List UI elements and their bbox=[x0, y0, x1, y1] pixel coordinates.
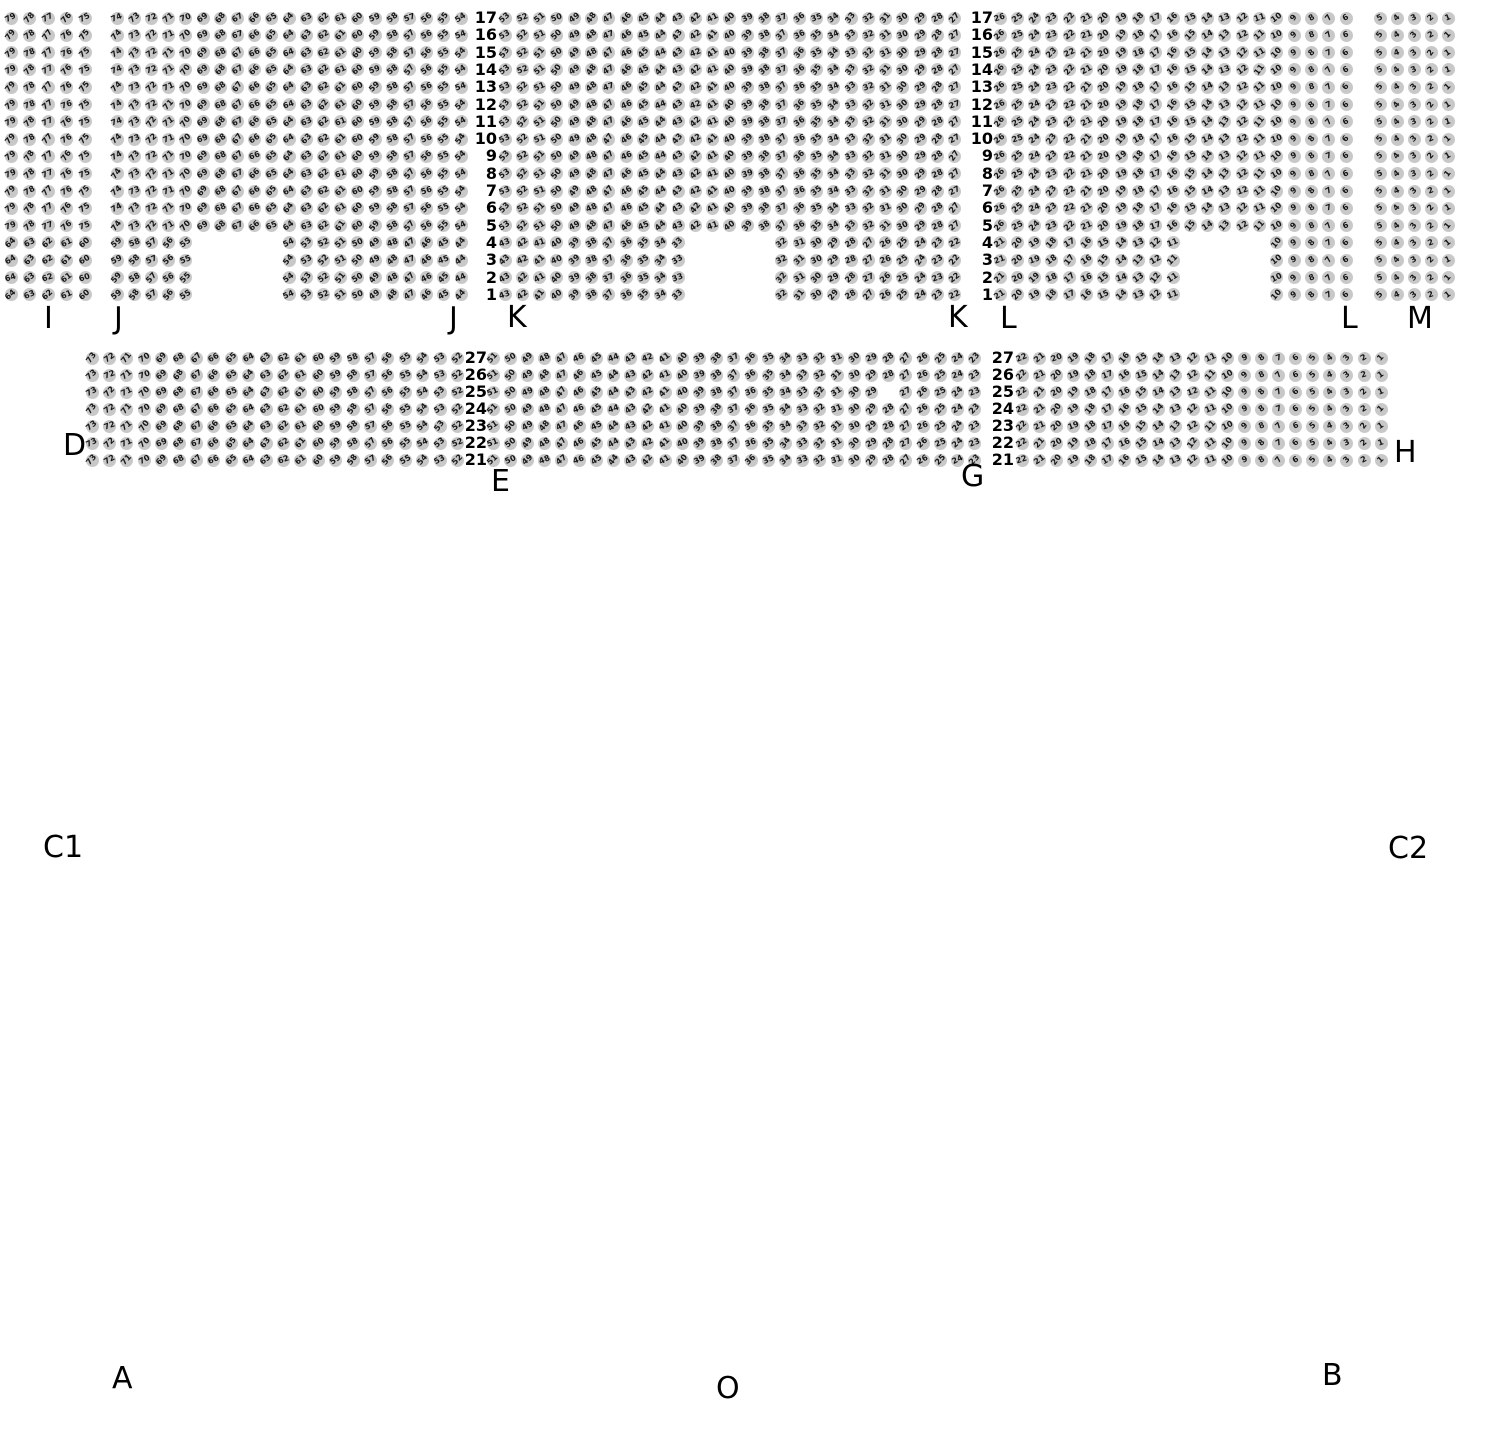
seat[interactable]: 23 bbox=[968, 403, 981, 416]
seat[interactable]: 34 bbox=[827, 63, 840, 76]
seat[interactable]: 9 bbox=[1288, 115, 1301, 128]
seat[interactable]: 52 bbox=[516, 167, 529, 180]
seat[interactable]: 4 bbox=[1391, 271, 1404, 284]
seat[interactable]: 72 bbox=[103, 403, 116, 416]
seat[interactable]: 28 bbox=[882, 352, 895, 365]
seat[interactable]: 32 bbox=[862, 219, 875, 232]
seat[interactable]: 37 bbox=[775, 150, 788, 163]
seat[interactable]: 45 bbox=[437, 236, 450, 249]
seat[interactable]: 34 bbox=[779, 369, 792, 382]
seat[interactable]: 8 bbox=[1255, 386, 1268, 399]
seat[interactable]: 51 bbox=[334, 271, 347, 284]
seat[interactable]: 1 bbox=[1442, 288, 1455, 301]
seat[interactable]: 8 bbox=[1255, 437, 1268, 450]
seat[interactable]: 20 bbox=[1097, 167, 1110, 180]
seat[interactable]: 21 bbox=[1033, 420, 1046, 433]
seat[interactable]: 78 bbox=[23, 185, 36, 198]
seat[interactable]: 71 bbox=[162, 133, 175, 146]
seat[interactable]: 20 bbox=[1050, 437, 1063, 450]
seat[interactable]: 40 bbox=[723, 29, 736, 42]
seat[interactable]: 35 bbox=[762, 386, 775, 399]
seat[interactable]: 45 bbox=[637, 167, 650, 180]
seat[interactable]: 19 bbox=[1028, 288, 1041, 301]
seat[interactable]: 38 bbox=[710, 437, 723, 450]
seat[interactable]: 9 bbox=[1238, 420, 1251, 433]
seat[interactable]: 74 bbox=[111, 63, 124, 76]
seat[interactable]: 7 bbox=[1272, 369, 1285, 382]
seat[interactable]: 34 bbox=[779, 420, 792, 433]
seat[interactable]: 76 bbox=[60, 98, 73, 111]
seat[interactable]: 59 bbox=[369, 63, 382, 76]
seat[interactable]: 58 bbox=[347, 369, 360, 382]
seat[interactable]: 68 bbox=[173, 437, 186, 450]
seat[interactable]: 33 bbox=[845, 81, 858, 94]
seat[interactable]: 49 bbox=[568, 167, 581, 180]
seat[interactable]: 67 bbox=[231, 46, 244, 59]
seat[interactable]: 68 bbox=[214, 150, 227, 163]
seat[interactable]: 54 bbox=[416, 454, 429, 467]
seat[interactable]: 18 bbox=[1084, 420, 1097, 433]
seat[interactable]: 30 bbox=[896, 202, 909, 215]
seat[interactable]: 22 bbox=[1016, 420, 1029, 433]
seat[interactable]: 34 bbox=[827, 185, 840, 198]
seat[interactable]: 59 bbox=[369, 29, 382, 42]
seat[interactable]: 18 bbox=[1132, 63, 1145, 76]
seat[interactable]: 50 bbox=[550, 219, 563, 232]
seat[interactable]: 49 bbox=[521, 420, 534, 433]
seat[interactable]: 7 bbox=[1322, 288, 1335, 301]
seat[interactable]: 32 bbox=[813, 403, 826, 416]
seat[interactable]: 73 bbox=[128, 46, 141, 59]
seat[interactable]: 35 bbox=[810, 46, 823, 59]
seat[interactable]: 59 bbox=[369, 219, 382, 232]
seat[interactable]: 46 bbox=[573, 403, 586, 416]
seat[interactable]: 70 bbox=[179, 133, 192, 146]
seat[interactable]: 6 bbox=[1289, 420, 1302, 433]
seat[interactable]: 76 bbox=[60, 81, 73, 94]
seat[interactable]: 18 bbox=[1132, 46, 1145, 59]
seat[interactable]: 13 bbox=[1169, 403, 1182, 416]
seat[interactable]: 50 bbox=[504, 437, 517, 450]
seat[interactable]: 61 bbox=[334, 12, 347, 25]
seat[interactable]: 42 bbox=[641, 386, 654, 399]
seat[interactable]: 1 bbox=[1442, 236, 1455, 249]
seat[interactable]: 25 bbox=[934, 454, 947, 467]
seat[interactable]: 55 bbox=[437, 185, 450, 198]
seat[interactable]: 56 bbox=[420, 46, 433, 59]
seat[interactable]: 79 bbox=[5, 167, 18, 180]
seat[interactable]: 38 bbox=[710, 369, 723, 382]
seat[interactable]: 54 bbox=[455, 185, 468, 198]
seat[interactable]: 16 bbox=[1167, 167, 1180, 180]
seat[interactable]: 62 bbox=[277, 352, 290, 365]
seat[interactable]: 12 bbox=[1187, 403, 1200, 416]
seat[interactable]: 77 bbox=[42, 12, 55, 25]
seat[interactable]: 7 bbox=[1322, 29, 1335, 42]
seat[interactable]: 3 bbox=[1340, 420, 1353, 433]
seat[interactable]: 56 bbox=[420, 115, 433, 128]
seat[interactable]: 22 bbox=[1063, 46, 1076, 59]
seat[interactable]: 38 bbox=[710, 454, 723, 467]
seat[interactable]: 18 bbox=[1132, 202, 1145, 215]
seat[interactable]: 10 bbox=[1270, 288, 1283, 301]
seat[interactable]: 11 bbox=[1253, 46, 1266, 59]
seat[interactable]: 30 bbox=[810, 254, 823, 267]
seat[interactable]: 62 bbox=[317, 12, 330, 25]
seat[interactable]: 5 bbox=[1306, 369, 1319, 382]
seat[interactable]: 21 bbox=[1080, 115, 1093, 128]
seat[interactable]: 16 bbox=[1118, 403, 1131, 416]
seat[interactable]: 22 bbox=[1063, 81, 1076, 94]
seat[interactable]: 19 bbox=[1067, 454, 1080, 467]
seat[interactable]: 73 bbox=[128, 12, 141, 25]
seat[interactable]: 2 bbox=[1425, 12, 1438, 25]
seat[interactable]: 68 bbox=[173, 352, 186, 365]
seat[interactable]: 66 bbox=[207, 420, 220, 433]
seat[interactable]: 17 bbox=[1063, 271, 1076, 284]
seat[interactable]: 26 bbox=[917, 369, 930, 382]
seat[interactable]: 46 bbox=[573, 420, 586, 433]
seat[interactable]: 37 bbox=[602, 254, 615, 267]
seat[interactable]: 42 bbox=[641, 437, 654, 450]
seat[interactable]: 32 bbox=[862, 12, 875, 25]
seat[interactable]: 5 bbox=[1374, 167, 1387, 180]
seat[interactable]: 39 bbox=[741, 185, 754, 198]
seat[interactable]: 72 bbox=[145, 219, 158, 232]
seat[interactable]: 49 bbox=[568, 81, 581, 94]
seat[interactable]: 10 bbox=[1221, 454, 1234, 467]
seat[interactable]: 32 bbox=[775, 271, 788, 284]
seat[interactable]: 44 bbox=[607, 437, 620, 450]
seat[interactable]: 40 bbox=[676, 369, 689, 382]
seat[interactable]: 35 bbox=[810, 202, 823, 215]
seat[interactable]: 8 bbox=[1305, 150, 1318, 163]
seat[interactable]: 48 bbox=[538, 454, 551, 467]
seat[interactable]: 63 bbox=[300, 219, 313, 232]
seat[interactable]: 58 bbox=[347, 454, 360, 467]
seat[interactable]: 17 bbox=[1149, 63, 1162, 76]
seat[interactable]: 20 bbox=[1097, 81, 1110, 94]
seat[interactable]: 61 bbox=[334, 115, 347, 128]
seat[interactable]: 2 bbox=[1425, 150, 1438, 163]
seat[interactable]: 5 bbox=[1374, 236, 1387, 249]
seat[interactable]: 71 bbox=[162, 81, 175, 94]
seat[interactable]: 59 bbox=[369, 167, 382, 180]
seat[interactable]: 60 bbox=[351, 98, 364, 111]
seat[interactable]: 34 bbox=[827, 150, 840, 163]
seat[interactable]: 32 bbox=[813, 369, 826, 382]
seat[interactable]: 4 bbox=[1323, 454, 1336, 467]
seat[interactable]: 37 bbox=[775, 202, 788, 215]
seat[interactable]: 11 bbox=[1204, 352, 1217, 365]
seat[interactable]: 75 bbox=[79, 12, 92, 25]
seat[interactable]: 4 bbox=[1391, 185, 1404, 198]
seat[interactable]: 13 bbox=[1132, 254, 1145, 267]
seat[interactable]: 19 bbox=[1115, 167, 1128, 180]
seat[interactable]: 73 bbox=[128, 202, 141, 215]
seat[interactable]: 3 bbox=[1408, 167, 1421, 180]
seat[interactable]: 45 bbox=[437, 288, 450, 301]
seat[interactable]: 49 bbox=[521, 454, 534, 467]
seat[interactable]: 44 bbox=[607, 454, 620, 467]
seat[interactable]: 25 bbox=[1011, 133, 1024, 146]
seat[interactable]: 14 bbox=[1201, 81, 1214, 94]
seat[interactable]: 30 bbox=[848, 420, 861, 433]
seat[interactable]: 56 bbox=[381, 403, 394, 416]
seat[interactable]: 53 bbox=[499, 63, 512, 76]
seat[interactable]: 40 bbox=[723, 150, 736, 163]
seat[interactable]: 28 bbox=[931, 150, 944, 163]
seat[interactable]: 35 bbox=[810, 63, 823, 76]
seat[interactable]: 60 bbox=[79, 271, 92, 284]
seat[interactable]: 3 bbox=[1408, 219, 1421, 232]
seat[interactable]: 62 bbox=[42, 236, 55, 249]
seat[interactable]: 25 bbox=[1011, 46, 1024, 59]
seat[interactable]: 16 bbox=[1167, 185, 1180, 198]
seat[interactable]: 2 bbox=[1425, 219, 1438, 232]
seat[interactable]: 17 bbox=[1149, 185, 1162, 198]
seat[interactable]: 76 bbox=[60, 219, 73, 232]
seat[interactable]: 3 bbox=[1408, 133, 1421, 146]
seat[interactable]: 62 bbox=[42, 288, 55, 301]
seat[interactable]: 10 bbox=[1270, 254, 1283, 267]
seat[interactable]: 6 bbox=[1289, 386, 1302, 399]
seat[interactable]: 35 bbox=[810, 167, 823, 180]
seat[interactable]: 50 bbox=[550, 185, 563, 198]
seat[interactable]: 6 bbox=[1289, 352, 1302, 365]
seat[interactable]: 23 bbox=[931, 288, 944, 301]
seat[interactable]: 22 bbox=[1063, 98, 1076, 111]
seat[interactable]: 55 bbox=[399, 369, 412, 382]
seat[interactable]: 64 bbox=[5, 288, 18, 301]
seat[interactable]: 35 bbox=[810, 12, 823, 25]
seat[interactable]: 9 bbox=[1288, 63, 1301, 76]
seat[interactable]: 73 bbox=[86, 454, 99, 467]
seat[interactable]: 67 bbox=[231, 12, 244, 25]
seat[interactable]: 53 bbox=[300, 288, 313, 301]
seat[interactable]: 43 bbox=[672, 185, 685, 198]
seat[interactable]: 36 bbox=[793, 29, 806, 42]
seat[interactable]: 31 bbox=[879, 29, 892, 42]
seat[interactable]: 23 bbox=[1045, 115, 1058, 128]
seat[interactable]: 66 bbox=[207, 403, 220, 416]
seat[interactable]: 39 bbox=[741, 12, 754, 25]
seat[interactable]: 8 bbox=[1305, 12, 1318, 25]
seat[interactable]: 2 bbox=[1425, 271, 1438, 284]
seat[interactable]: 6 bbox=[1340, 46, 1353, 59]
seat[interactable]: 61 bbox=[334, 167, 347, 180]
seat[interactable]: 31 bbox=[793, 288, 806, 301]
seat[interactable]: 32 bbox=[862, 63, 875, 76]
seat[interactable]: 40 bbox=[676, 454, 689, 467]
seat[interactable]: 12 bbox=[1236, 29, 1249, 42]
seat[interactable]: 3 bbox=[1340, 437, 1353, 450]
seat[interactable]: 46 bbox=[620, 185, 633, 198]
seat[interactable]: 7 bbox=[1272, 454, 1285, 467]
seat[interactable]: 57 bbox=[403, 133, 416, 146]
seat[interactable]: 54 bbox=[416, 420, 429, 433]
seat[interactable]: 17 bbox=[1149, 219, 1162, 232]
seat[interactable]: 11 bbox=[1167, 271, 1180, 284]
seat[interactable]: 21 bbox=[1033, 454, 1046, 467]
seat[interactable]: 53 bbox=[434, 437, 447, 450]
seat[interactable]: 39 bbox=[693, 369, 706, 382]
seat[interactable]: 11 bbox=[1204, 437, 1217, 450]
seat[interactable]: 32 bbox=[862, 46, 875, 59]
seat[interactable]: 15 bbox=[1135, 369, 1148, 382]
seat[interactable]: 79 bbox=[5, 12, 18, 25]
seat[interactable]: 62 bbox=[317, 150, 330, 163]
seat[interactable]: 41 bbox=[706, 63, 719, 76]
seat[interactable]: 59 bbox=[329, 437, 342, 450]
seat[interactable]: 25 bbox=[1011, 81, 1024, 94]
seat[interactable]: 13 bbox=[1132, 271, 1145, 284]
seat[interactable]: 23 bbox=[931, 236, 944, 249]
seat[interactable]: 56 bbox=[381, 454, 394, 467]
seat[interactable]: 50 bbox=[504, 352, 517, 365]
seat[interactable]: 79 bbox=[5, 202, 18, 215]
seat[interactable]: 79 bbox=[5, 185, 18, 198]
seat[interactable]: 28 bbox=[931, 98, 944, 111]
seat[interactable]: 65 bbox=[265, 46, 278, 59]
seat[interactable]: 53 bbox=[434, 369, 447, 382]
seat[interactable]: 36 bbox=[620, 288, 633, 301]
seat[interactable]: 38 bbox=[710, 403, 723, 416]
seat[interactable]: 10 bbox=[1270, 29, 1283, 42]
seat[interactable]: 9 bbox=[1288, 150, 1301, 163]
seat[interactable]: 69 bbox=[197, 63, 210, 76]
seat[interactable]: 34 bbox=[827, 133, 840, 146]
seat[interactable]: 17 bbox=[1101, 386, 1114, 399]
seat[interactable]: 34 bbox=[827, 29, 840, 42]
seat[interactable]: 51 bbox=[533, 202, 546, 215]
seat[interactable]: 57 bbox=[403, 115, 416, 128]
seat[interactable]: 4 bbox=[1391, 150, 1404, 163]
seat[interactable]: 4 bbox=[1391, 254, 1404, 267]
seat[interactable]: 10 bbox=[1270, 167, 1283, 180]
seat[interactable]: 59 bbox=[369, 81, 382, 94]
seat[interactable]: 29 bbox=[865, 403, 878, 416]
seat[interactable]: 52 bbox=[317, 254, 330, 267]
seat[interactable]: 52 bbox=[516, 46, 529, 59]
seat[interactable]: 30 bbox=[896, 150, 909, 163]
seat[interactable]: 54 bbox=[455, 46, 468, 59]
seat[interactable]: 41 bbox=[533, 254, 546, 267]
seat[interactable]: 23 bbox=[1045, 133, 1058, 146]
seat[interactable]: 40 bbox=[723, 202, 736, 215]
seat[interactable]: 22 bbox=[1016, 437, 1029, 450]
seat[interactable]: 12 bbox=[1187, 386, 1200, 399]
seat[interactable]: 27 bbox=[948, 46, 961, 59]
seat[interactable]: 43 bbox=[624, 454, 637, 467]
seat[interactable]: 13 bbox=[1218, 150, 1231, 163]
seat[interactable]: 39 bbox=[741, 202, 754, 215]
seat[interactable]: 17 bbox=[1101, 369, 1114, 382]
seat[interactable]: 24 bbox=[1028, 167, 1041, 180]
seat[interactable]: 15 bbox=[1097, 271, 1110, 284]
seat[interactable]: 8 bbox=[1255, 454, 1268, 467]
seat[interactable]: 34 bbox=[827, 115, 840, 128]
seat[interactable]: 28 bbox=[931, 202, 944, 215]
seat[interactable]: 79 bbox=[5, 219, 18, 232]
seat[interactable]: 16 bbox=[1167, 150, 1180, 163]
seat[interactable]: 61 bbox=[334, 63, 347, 76]
seat[interactable]: 53 bbox=[434, 403, 447, 416]
seat[interactable]: 5 bbox=[1374, 271, 1387, 284]
seat[interactable]: 58 bbox=[386, 81, 399, 94]
seat[interactable]: 14 bbox=[1201, 29, 1214, 42]
seat[interactable]: 29 bbox=[827, 271, 840, 284]
seat[interactable]: 40 bbox=[723, 219, 736, 232]
seat[interactable]: 13 bbox=[1218, 46, 1231, 59]
seat[interactable]: 36 bbox=[793, 133, 806, 146]
seat[interactable]: 53 bbox=[434, 420, 447, 433]
seat[interactable]: 38 bbox=[758, 29, 771, 42]
seat[interactable]: 73 bbox=[86, 369, 99, 382]
seat[interactable]: 27 bbox=[948, 81, 961, 94]
seat[interactable]: 43 bbox=[499, 236, 512, 249]
seat[interactable]: 59 bbox=[111, 254, 124, 267]
seat[interactable]: 73 bbox=[128, 167, 141, 180]
seat[interactable]: 67 bbox=[231, 29, 244, 42]
seat[interactable]: 12 bbox=[1187, 420, 1200, 433]
seat[interactable]: 42 bbox=[516, 254, 529, 267]
seat[interactable]: 77 bbox=[42, 63, 55, 76]
seat[interactable]: 48 bbox=[538, 352, 551, 365]
seat[interactable]: 26 bbox=[994, 219, 1007, 232]
seat[interactable]: 69 bbox=[155, 420, 168, 433]
seat[interactable]: 59 bbox=[329, 352, 342, 365]
seat[interactable]: 5 bbox=[1374, 133, 1387, 146]
seat[interactable]: 54 bbox=[455, 29, 468, 42]
seat[interactable]: 67 bbox=[231, 115, 244, 128]
seat[interactable]: 57 bbox=[364, 454, 377, 467]
seat[interactable]: 9 bbox=[1238, 386, 1251, 399]
seat[interactable]: 1 bbox=[1442, 150, 1455, 163]
seat[interactable]: 2 bbox=[1425, 236, 1438, 249]
seat[interactable]: 41 bbox=[659, 386, 672, 399]
seat[interactable]: 27 bbox=[862, 288, 875, 301]
seat[interactable]: 39 bbox=[741, 29, 754, 42]
seat[interactable]: 26 bbox=[994, 133, 1007, 146]
seat[interactable]: 75 bbox=[79, 115, 92, 128]
seat[interactable]: 26 bbox=[994, 115, 1007, 128]
seat[interactable]: 51 bbox=[533, 46, 546, 59]
seat[interactable]: 28 bbox=[931, 185, 944, 198]
seat[interactable]: 70 bbox=[138, 437, 151, 450]
seat[interactable]: 61 bbox=[294, 403, 307, 416]
seat[interactable]: 8 bbox=[1305, 115, 1318, 128]
seat[interactable]: 32 bbox=[813, 454, 826, 467]
seat[interactable]: 38 bbox=[758, 185, 771, 198]
seat[interactable]: 26 bbox=[917, 454, 930, 467]
seat[interactable]: 26 bbox=[994, 46, 1007, 59]
seat[interactable]: 57 bbox=[403, 202, 416, 215]
seat[interactable]: 2 bbox=[1425, 98, 1438, 111]
seat[interactable]: 1 bbox=[1442, 254, 1455, 267]
seat[interactable]: 15 bbox=[1097, 288, 1110, 301]
seat[interactable]: 39 bbox=[693, 386, 706, 399]
seat[interactable]: 14 bbox=[1201, 115, 1214, 128]
seat[interactable]: 49 bbox=[369, 271, 382, 284]
seat[interactable]: 75 bbox=[79, 46, 92, 59]
seat[interactable]: 75 bbox=[79, 63, 92, 76]
seat[interactable]: 8 bbox=[1305, 29, 1318, 42]
seat[interactable]: 2 bbox=[1425, 63, 1438, 76]
seat[interactable]: 10 bbox=[1270, 271, 1283, 284]
seat[interactable]: 70 bbox=[179, 81, 192, 94]
seat[interactable]: 21 bbox=[1080, 98, 1093, 111]
